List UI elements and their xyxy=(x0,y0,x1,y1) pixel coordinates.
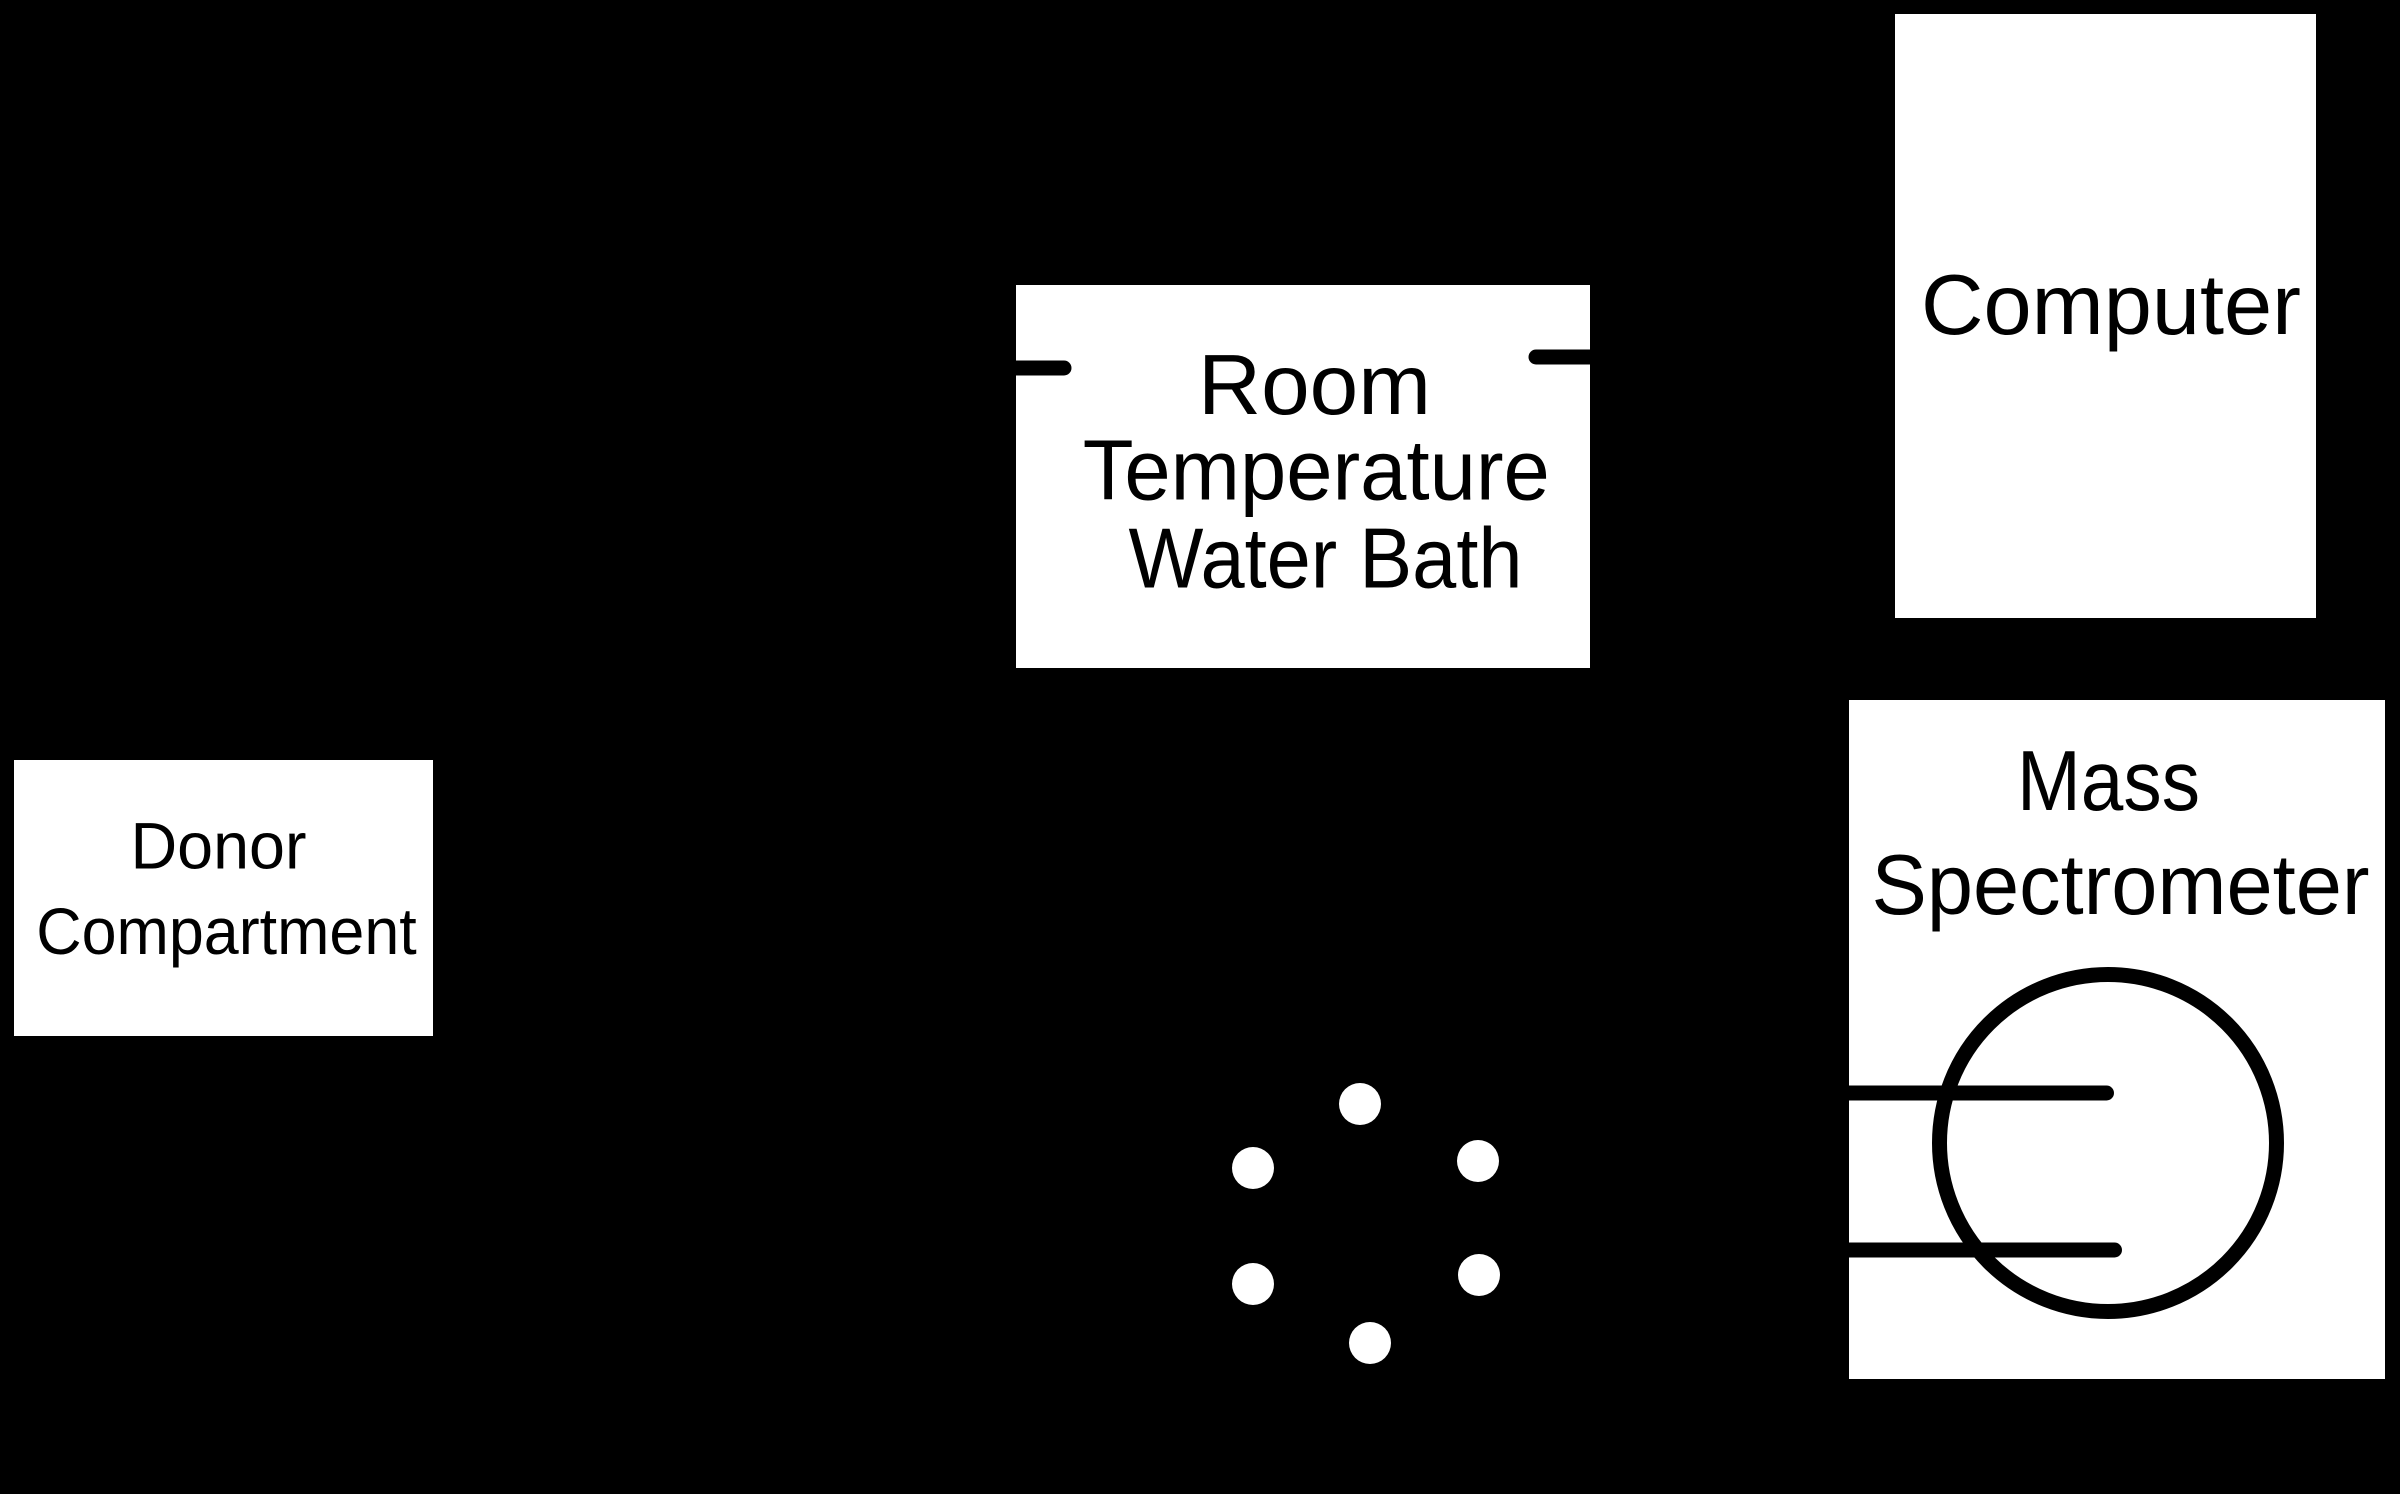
svg-text:Room: Room xyxy=(1198,338,1431,433)
svg-text:Donor: Donor xyxy=(131,809,307,883)
svg-text:Water Bath: Water Bath xyxy=(1129,512,1523,607)
svg-text:Compartment: Compartment xyxy=(36,894,417,968)
svg-text:Spectrometer: Spectrometer xyxy=(1872,838,2370,933)
svg-text:Mass: Mass xyxy=(2017,734,2200,829)
svg-text:Computer: Computer xyxy=(1921,258,2301,353)
svg-text:Temperature: Temperature xyxy=(1083,424,1550,519)
